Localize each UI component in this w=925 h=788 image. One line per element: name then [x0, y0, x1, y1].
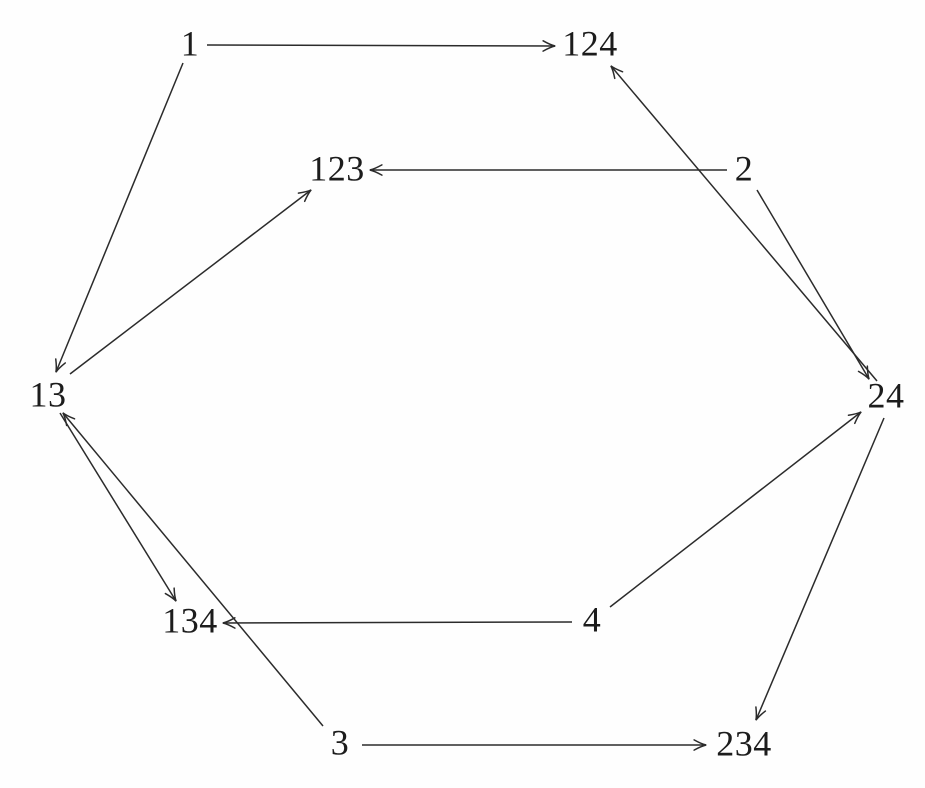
node-134: 134 [162, 603, 218, 639]
node-2: 2 [735, 151, 754, 187]
edge-layer [0, 0, 925, 788]
edge-3-to-13 [63, 413, 323, 726]
edge-13-to-123 [70, 190, 311, 374]
node-234: 234 [716, 726, 772, 762]
edge-24-to-234 [756, 418, 884, 720]
node-3: 3 [331, 725, 350, 761]
edge-4-to-24 [610, 412, 861, 607]
edge-4-to-134 [223, 622, 572, 623]
node-124: 124 [562, 26, 618, 62]
node-123: 123 [309, 151, 365, 187]
node-13: 13 [30, 377, 67, 413]
graph-figure: 11241232132413443234 [0, 0, 925, 788]
node-4: 4 [583, 602, 602, 638]
edge-1-to-124 [207, 45, 555, 46]
node-1: 1 [181, 26, 200, 62]
edge-24-to-124 [611, 66, 877, 381]
node-24: 24 [868, 378, 905, 414]
edge-1-to-13 [56, 63, 183, 372]
edge-13-to-134 [60, 413, 176, 601]
